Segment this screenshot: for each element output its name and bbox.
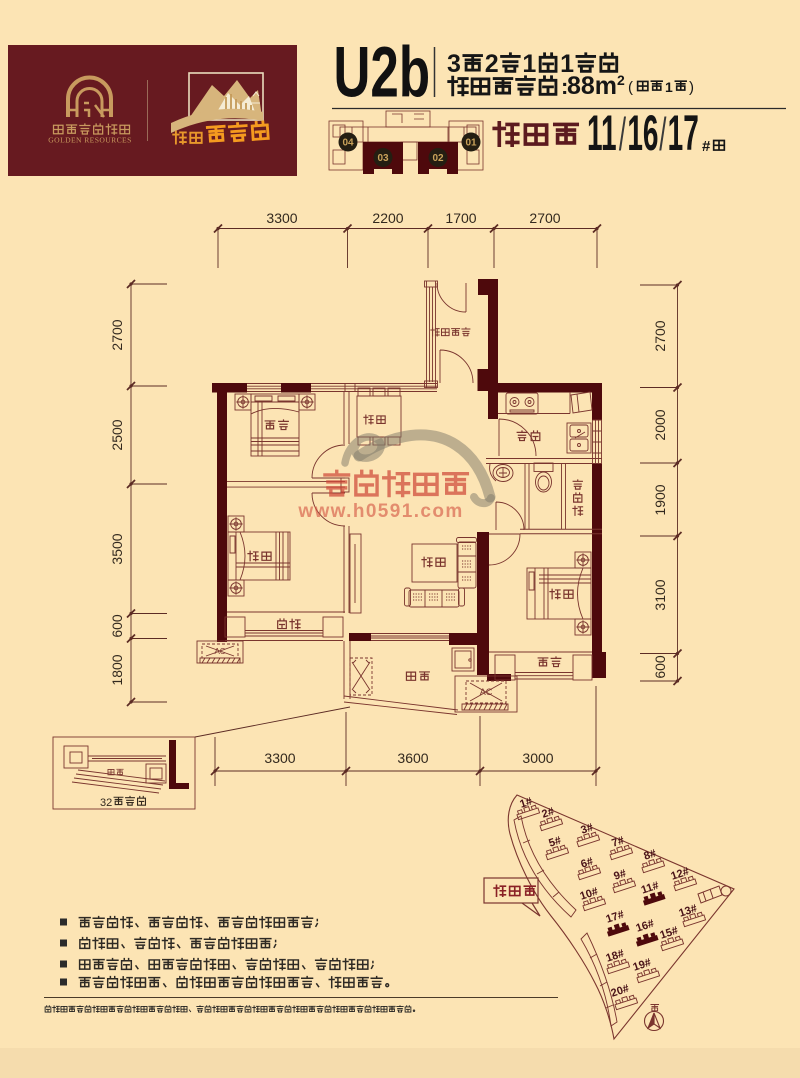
svg-text:AC: AC bbox=[480, 687, 493, 697]
svg-text:GOLDEN RESOURCES: GOLDEN RESOURCES bbox=[48, 136, 131, 145]
svg-text:16: 16 bbox=[627, 104, 658, 161]
svg-text:88m: 88m bbox=[567, 72, 617, 100]
svg-text:): ) bbox=[689, 79, 694, 96]
svg-text:AC: AC bbox=[214, 647, 225, 656]
svg-text:3000: 3000 bbox=[522, 750, 553, 766]
svg-text:02: 02 bbox=[432, 153, 444, 164]
svg-text:3600: 3600 bbox=[397, 750, 428, 766]
svg-text:3: 3 bbox=[447, 50, 461, 78]
svg-text:2200: 2200 bbox=[372, 210, 403, 226]
svg-text:01: 01 bbox=[465, 138, 477, 149]
svg-text:1800: 1800 bbox=[109, 654, 125, 685]
svg-text:2: 2 bbox=[617, 72, 625, 88]
svg-text:600: 600 bbox=[109, 614, 125, 638]
svg-text:2700: 2700 bbox=[109, 319, 125, 350]
svg-text:3100: 3100 bbox=[652, 579, 668, 610]
svg-text:3300: 3300 bbox=[266, 210, 297, 226]
svg-text:3500: 3500 bbox=[109, 533, 125, 564]
svg-text:/: / bbox=[659, 108, 667, 160]
svg-text:600: 600 bbox=[652, 655, 668, 679]
svg-text:2500: 2500 bbox=[109, 419, 125, 450]
svg-text:#: # bbox=[702, 138, 711, 155]
svg-text:3300: 3300 bbox=[264, 750, 295, 766]
svg-text:04: 04 bbox=[342, 138, 354, 149]
svg-text:03: 03 bbox=[377, 153, 389, 164]
svg-text:1900: 1900 bbox=[652, 484, 668, 515]
svg-text:(: ( bbox=[628, 79, 633, 96]
svg-text:2000: 2000 bbox=[652, 409, 668, 440]
svg-text:17: 17 bbox=[668, 104, 699, 161]
svg-text:1: 1 bbox=[522, 50, 536, 78]
svg-text:1700: 1700 bbox=[445, 210, 476, 226]
svg-text:1: 1 bbox=[665, 79, 673, 95]
svg-text:32: 32 bbox=[100, 797, 112, 809]
svg-text:U2b: U2b bbox=[334, 33, 431, 112]
svg-text:2700: 2700 bbox=[652, 320, 668, 351]
svg-text:/: / bbox=[619, 108, 627, 160]
svg-text:2700: 2700 bbox=[529, 210, 560, 226]
svg-text:2: 2 bbox=[485, 50, 499, 78]
svg-text:11: 11 bbox=[587, 104, 617, 161]
svg-text:www.h0591.com: www.h0591.com bbox=[297, 501, 463, 522]
